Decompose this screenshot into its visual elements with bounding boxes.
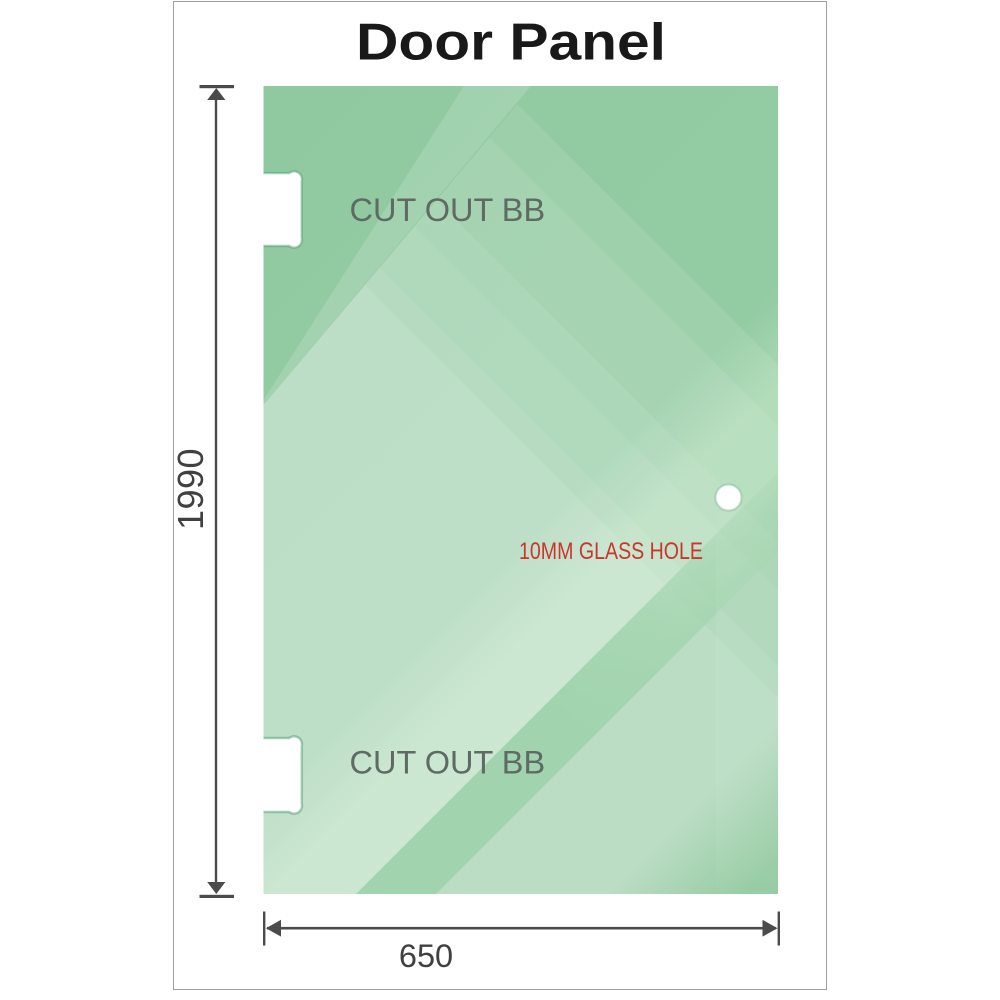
svg-text:CUT OUT BB: CUT OUT BB bbox=[350, 745, 546, 781]
svg-text:10MM GLASS HOLE: 10MM GLASS HOLE bbox=[519, 538, 703, 565]
svg-text:650: 650 bbox=[399, 938, 453, 974]
svg-text:Door Panel: Door Panel bbox=[356, 14, 666, 72]
svg-text:1990: 1990 bbox=[170, 448, 211, 530]
svg-text:CUT OUT BB: CUT OUT BB bbox=[350, 192, 546, 228]
